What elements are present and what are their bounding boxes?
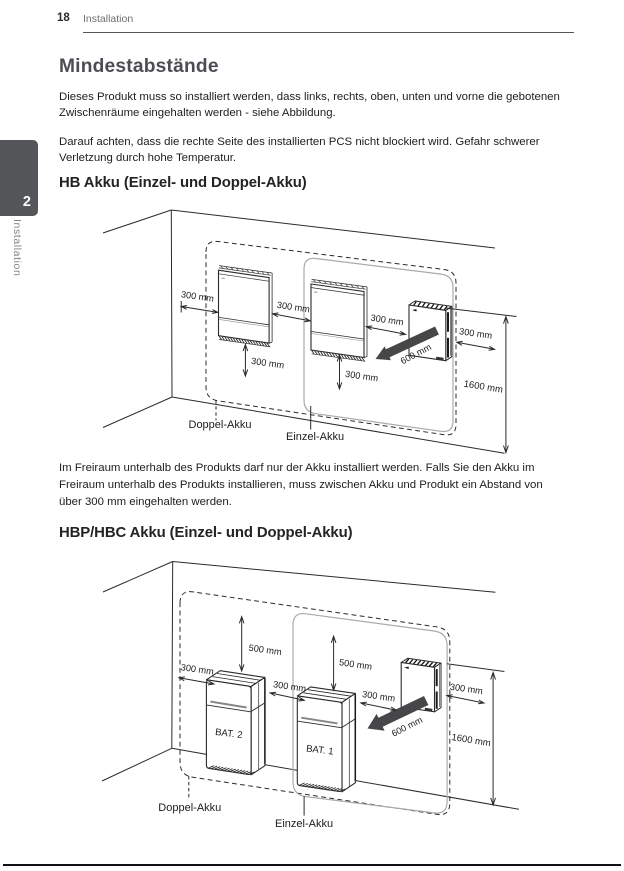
svg-text:500 mm: 500 mm [248, 643, 283, 658]
svg-text:1600 mm: 1600 mm [451, 732, 492, 749]
svg-text:Doppel-Akku: Doppel-Akku [189, 419, 252, 431]
svg-text:300 mm: 300 mm [459, 326, 494, 341]
svg-text:300 mm: 300 mm [362, 689, 397, 704]
svg-text:300 mm: 300 mm [345, 369, 380, 384]
svg-text:500 mm: 500 mm [338, 657, 373, 672]
svg-text:Einzel-Akku: Einzel-Akku [275, 818, 333, 830]
svg-text:Einzel-Akku: Einzel-Akku [286, 431, 344, 443]
svg-text:Doppel-Akku: Doppel-Akku [158, 802, 221, 814]
svg-text:300 mm: 300 mm [180, 289, 215, 304]
svg-text:300 mm: 300 mm [276, 300, 311, 315]
svg-text:300 mm: 300 mm [370, 313, 405, 328]
svg-text:300 mm: 300 mm [449, 682, 484, 697]
svg-text:300 mm: 300 mm [180, 662, 215, 677]
svg-text:300 mm: 300 mm [272, 679, 307, 694]
svg-text:1600 mm: 1600 mm [463, 379, 504, 396]
svg-text:300 mm: 300 mm [251, 356, 286, 371]
